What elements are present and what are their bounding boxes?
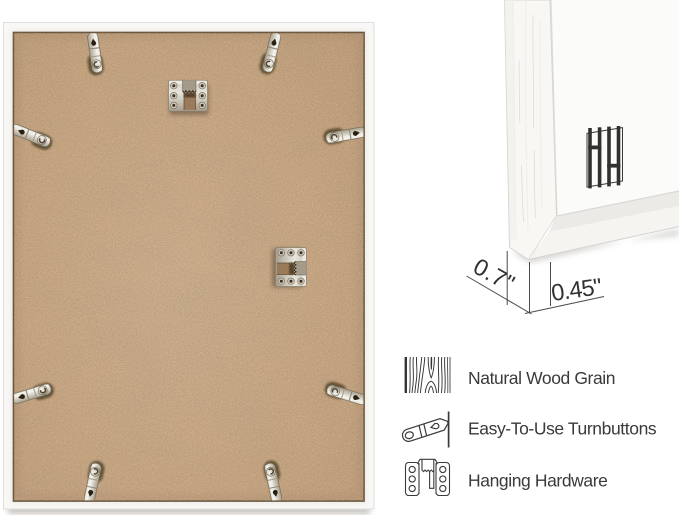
svg-text:Easy-To-Use Turnbuttons: Easy-To-Use Turnbuttons [468, 419, 657, 439]
svg-text:Hanging Hardware: Hanging Hardware [468, 470, 608, 490]
svg-text:Natural Wood Grain: Natural Wood Grain [468, 368, 615, 388]
